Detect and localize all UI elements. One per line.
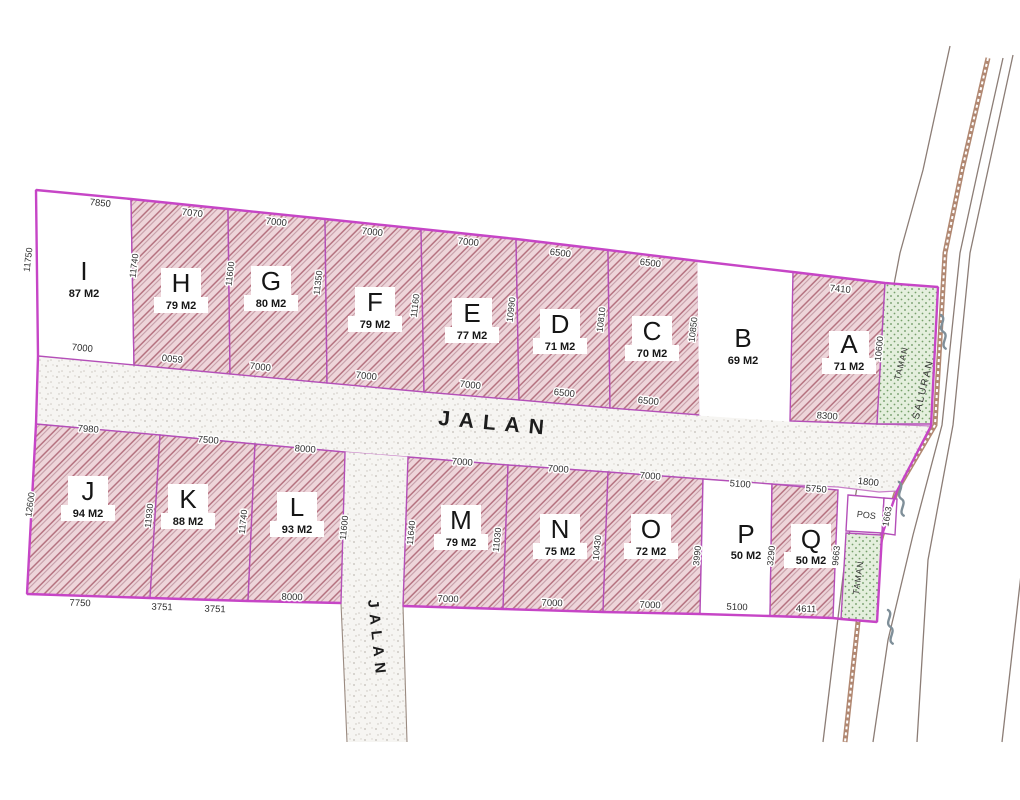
plot-P-area: 50 M2 <box>731 550 762 562</box>
plot-H-area: 79 M2 <box>166 300 197 312</box>
plot-L-letter: L <box>290 492 304 522</box>
dim-D-bottom: 6500 <box>553 387 575 400</box>
dim-M-top: 7000 <box>451 456 473 468</box>
plot-A-area: 71 M2 <box>834 361 865 373</box>
plot-P-letter: P <box>737 519 754 549</box>
plot-B-area: 69 M2 <box>728 355 759 367</box>
plot-L-area: 93 M2 <box>282 524 313 536</box>
dim-Q-top: 5750 <box>805 483 827 495</box>
plot-J-letter: J <box>82 476 95 506</box>
dim-I-left: 11750 <box>22 247 35 272</box>
dim-I-top: 7850 <box>89 197 111 210</box>
plot-K-letter: K <box>179 484 197 514</box>
dim-N-top: 7000 <box>547 463 569 475</box>
dim-L-bottom: 8000 <box>281 592 303 604</box>
road-edge-line <box>1002 55 1020 742</box>
dim-G-top: 7000 <box>265 216 287 229</box>
dim-E-top: 7000 <box>457 236 479 249</box>
dim-C-bottom: 6500 <box>637 395 659 408</box>
plot-H-letter: H <box>172 268 191 298</box>
dim-A-bottom: 8300 <box>816 410 838 422</box>
dim-N-bottom: 7000 <box>541 598 563 610</box>
dim-K-bottom-b: 3751 <box>204 604 226 616</box>
road-vertical-area <box>341 452 408 742</box>
dim-P-bottom: 5100 <box>726 602 748 614</box>
plot-D-area: 71 M2 <box>545 341 576 353</box>
plot-M-letter: M <box>450 505 472 535</box>
plot-I-letter: I <box>80 256 87 286</box>
dim-J-bottom: 7750 <box>69 598 91 610</box>
dim-O-right: 3990 <box>691 545 703 566</box>
dim-E-bottom: 7000 <box>459 379 481 392</box>
plot-D-letter: D <box>551 309 570 339</box>
dim-strip-1800: 1800 <box>857 476 879 489</box>
plot-N-letter: N <box>551 514 570 544</box>
plot-B-letter: B <box>734 323 751 353</box>
plot-J-area: 94 M2 <box>73 508 104 520</box>
dim-Q-bottom: 4611 <box>796 604 817 616</box>
plot-M-area: 79 M2 <box>446 537 477 549</box>
plot-K-area: 88 M2 <box>173 516 204 528</box>
dim-F-top: 7000 <box>361 226 383 239</box>
plot-Q-letter: Q <box>801 524 821 554</box>
dim-F-bottom: 7000 <box>355 370 377 383</box>
dim-Q-right: 9663 <box>830 545 842 566</box>
plot-G-letter: G <box>261 266 281 296</box>
dim-G-bottom: 7000 <box>249 361 271 374</box>
plot-O-area: 72 M2 <box>636 546 667 558</box>
plot-F-area: 79 M2 <box>360 319 391 331</box>
plot-Q-area: 50 M2 <box>796 555 827 567</box>
plot-I-area: 87 M2 <box>69 288 100 300</box>
dim-O-bottom: 7000 <box>639 600 661 612</box>
plot-P-region <box>700 479 772 616</box>
dim-O-top: 7000 <box>639 470 661 482</box>
dim-A-top: 7410 <box>829 283 851 296</box>
dim-H-top: 7070 <box>181 207 203 220</box>
dim-M-bottom: 7000 <box>437 594 459 606</box>
plot-C-area: 70 M2 <box>637 348 668 360</box>
dim-P-top: 5100 <box>729 478 751 490</box>
plot-G-area: 80 M2 <box>256 298 287 310</box>
dim-H-bottom: 0059 <box>161 353 183 366</box>
plot-F-letter: F <box>367 287 383 317</box>
dim-L-top: 8000 <box>294 443 316 455</box>
plot-A-letter: A <box>840 329 858 359</box>
dim-P-right: 3290 <box>765 545 777 566</box>
plot-N-area: 75 M2 <box>545 546 576 558</box>
plot-E-area: 77 M2 <box>457 330 488 342</box>
plot-C-letter: C <box>643 316 662 346</box>
dim-I-bottom: 7000 <box>71 342 93 355</box>
site-plan-page: I 87 M2 H 79 M2 G 80 M2 F 79 M2 E 77 M2 … <box>0 0 1020 800</box>
wave-icon <box>886 610 894 644</box>
site-plan-drawing: I 87 M2 H 79 M2 G 80 M2 F 79 M2 E 77 M2 … <box>0 0 1020 800</box>
dim-K-bottom-a: 3751 <box>151 602 173 614</box>
plot-E-letter: E <box>463 298 480 328</box>
dim-K-top: 7500 <box>197 434 219 446</box>
plot-O-letter: O <box>641 514 661 544</box>
dim-J-top: 7980 <box>77 423 99 435</box>
